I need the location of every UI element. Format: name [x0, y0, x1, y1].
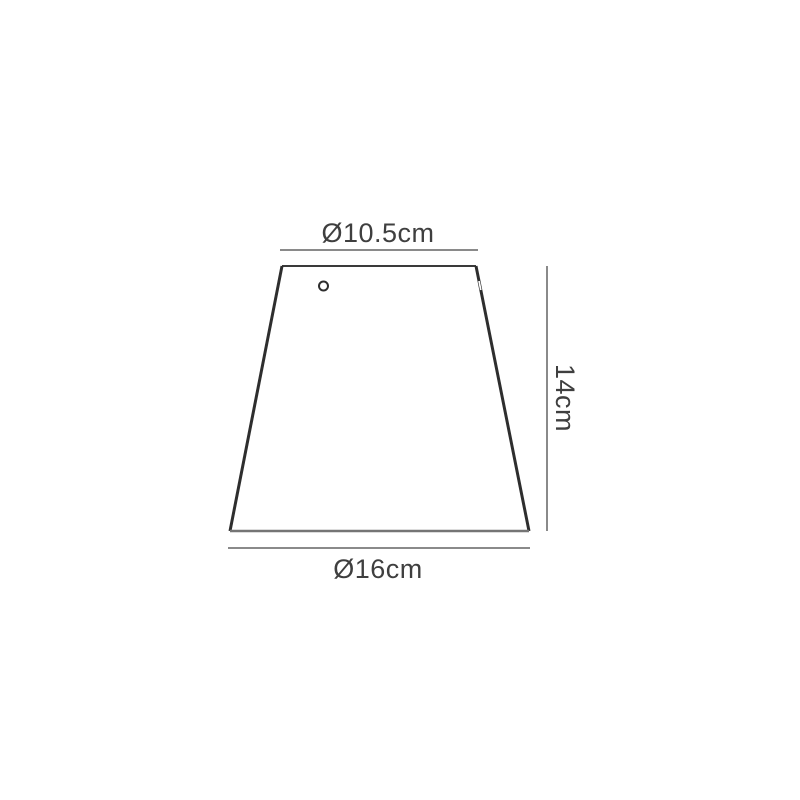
fixing-hole	[319, 282, 328, 291]
bottom-diameter-label: Ø16cm	[333, 554, 423, 584]
lampshade-dimension-diagram: Ø10.5cm 14cm Ø16cm	[0, 0, 800, 800]
height-label: 14cm	[550, 364, 580, 432]
diagram-canvas: Ø10.5cm 14cm Ø16cm	[0, 0, 800, 800]
shade-left-edge	[230, 266, 282, 531]
top-diameter-label: Ø10.5cm	[321, 218, 434, 248]
shade-right-edge	[476, 266, 529, 531]
